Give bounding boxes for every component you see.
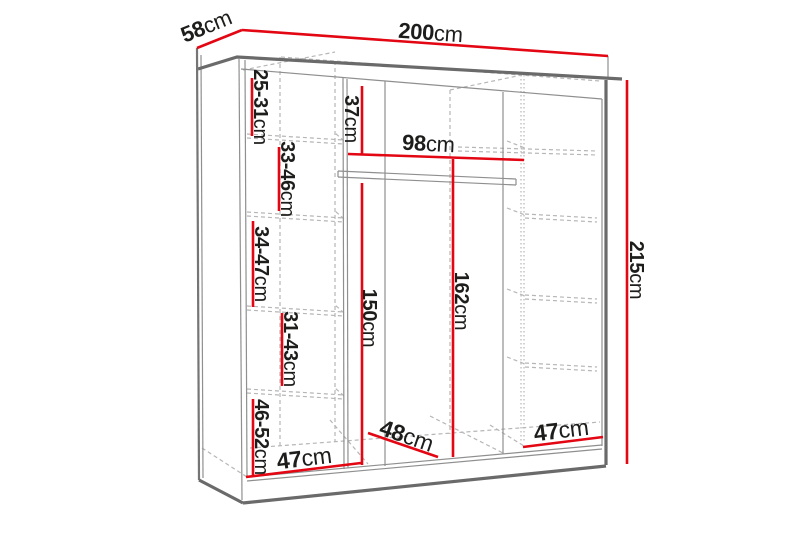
dim-shelf-gap-1-label: 25-31cm (249, 69, 271, 145)
dim-rail-width-label: 98cm (401, 130, 455, 158)
dim-middle-section-height-label: 162cm (450, 272, 472, 331)
dim-top-clearance-label: 37cm (340, 95, 362, 143)
wardrobe-dimension-diagram: 58cm 200cm 215cm 37cm 98cm 150cm 162cm 2… (0, 0, 800, 533)
dim-shelf-gap-5-label: 46-52cm (250, 399, 272, 475)
diagram-canvas: 58cm 200cm 215cm 37cm 98cm 150cm 162cm 2… (0, 0, 800, 533)
dim-height-label: 215cm (625, 241, 647, 300)
dim-width-label: 200cm (397, 18, 463, 47)
dim-shelf-gap-3-label: 34-47cm (250, 226, 272, 302)
dim-shelf-gap-4-label: 31-43cm (279, 311, 301, 387)
background (0, 0, 800, 533)
dim-left-section-height-label: 150cm (358, 289, 380, 348)
dim-shelf-gap-2-label: 33-46cm (276, 141, 298, 217)
